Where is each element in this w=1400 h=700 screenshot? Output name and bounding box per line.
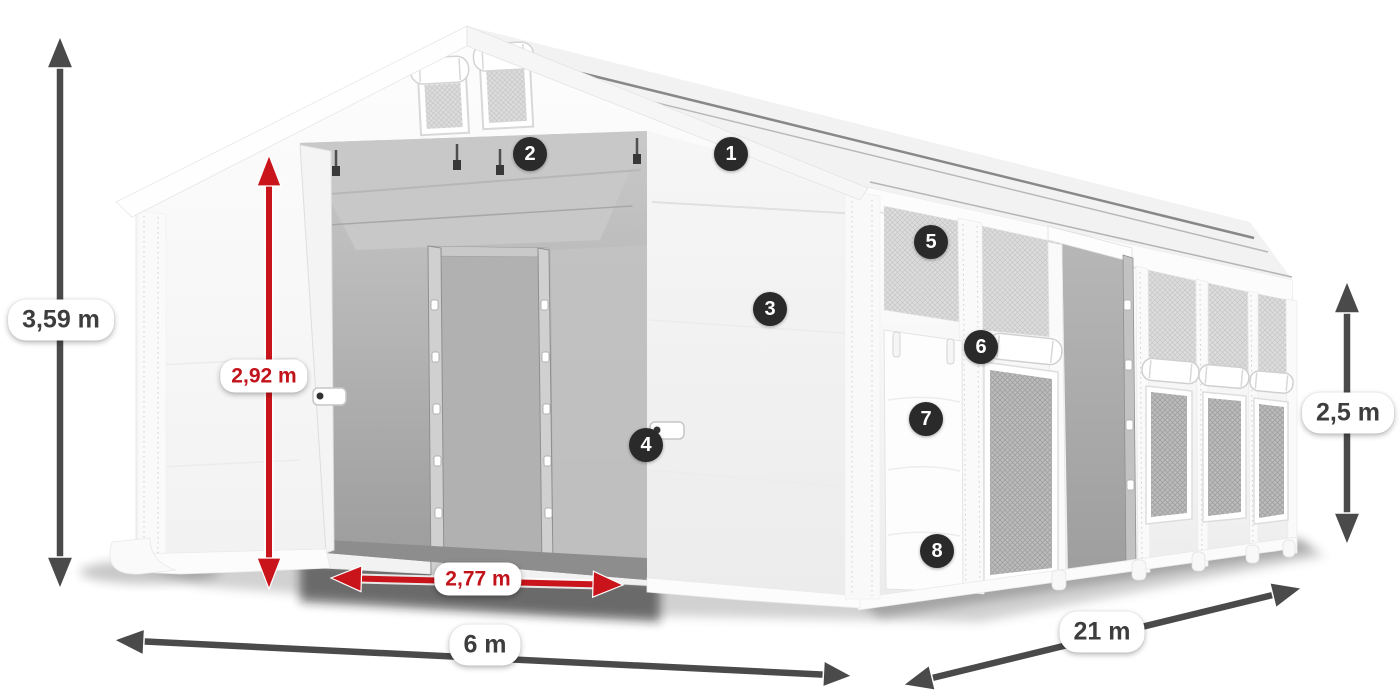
mid-frame-top-rail bbox=[428, 246, 549, 257]
feature-badge-2[interactable]: 2 bbox=[513, 137, 547, 171]
roll-up-cover-2 bbox=[1141, 358, 1200, 385]
feature-badge-6[interactable]: 6 bbox=[964, 330, 998, 364]
front-corner-pillar bbox=[845, 190, 880, 599]
feature-badge-1[interactable]: 1 bbox=[714, 137, 748, 171]
sliding-door-interior bbox=[1062, 236, 1132, 575]
feature-badge-5[interactable]: 5 bbox=[914, 225, 948, 259]
tent-illustration bbox=[0, 0, 1400, 700]
dimension-label-door-width: 2,77 m bbox=[434, 563, 521, 596]
front-door-opening bbox=[300, 131, 647, 580]
feature-badge-8[interactable]: 8 bbox=[920, 534, 954, 568]
gable-right-shading bbox=[647, 131, 862, 597]
roll-up-cover-3 bbox=[1198, 364, 1250, 389]
gable-corner-strap bbox=[138, 211, 166, 557]
interior-ceiling bbox=[300, 131, 647, 250]
dimension-label-total-height: 3,59 m bbox=[8, 300, 114, 341]
interior-mid-panel bbox=[436, 250, 546, 570]
interior-far-section bbox=[551, 245, 647, 566]
dimension-label-clear-height: 2,92 m bbox=[220, 360, 307, 393]
door-frame-pole-left bbox=[428, 246, 444, 578]
feature-badge-7[interactable]: 7 bbox=[909, 402, 943, 436]
roll-up-cover-4 bbox=[1249, 370, 1294, 394]
dimension-label-length: 21 m bbox=[1060, 612, 1145, 653]
side-sliding-door-opening bbox=[1048, 226, 1136, 580]
feature-badge-3[interactable]: 3 bbox=[753, 292, 787, 326]
feature-badge-4[interactable]: 4 bbox=[629, 428, 663, 462]
tent-dimension-diagram: 3,59 m 2,92 m 2,77 m 6 m 21 m 2,5 m 1 2 … bbox=[0, 0, 1400, 700]
dimension-label-side-height: 2,5 m bbox=[1302, 393, 1394, 434]
dimension-label-width: 6 m bbox=[449, 625, 520, 666]
